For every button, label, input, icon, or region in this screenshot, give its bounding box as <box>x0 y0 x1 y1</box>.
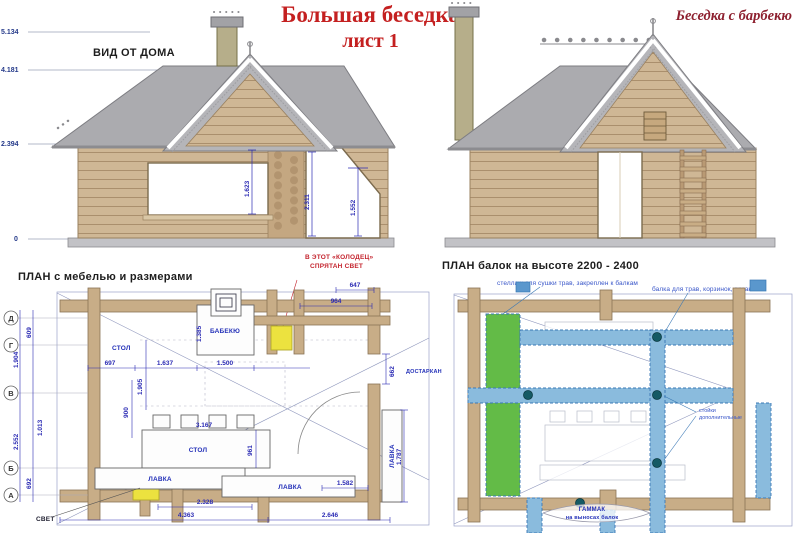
dimension-label: 1.582 <box>337 480 354 487</box>
dimension-label: 2.311 <box>304 194 311 210</box>
door-swing-arc <box>298 392 360 454</box>
plan-beams-drawing: ГАММАК на выносах балок стойки дополните… <box>440 260 800 533</box>
dimension-label: 1.623 <box>244 180 251 197</box>
hammock-label-line1: ГАММАК <box>579 507 606 513</box>
hammock-label-line2: на выносах балок <box>566 514 619 521</box>
log-corner <box>268 148 304 238</box>
beam-hammock-post-left <box>527 498 542 533</box>
chimney-cap <box>449 7 479 17</box>
dimension-label: 1.637 <box>157 360 174 367</box>
dimension-label: 1.013 <box>37 419 44 436</box>
furniture-label-table-small: СТОЛ <box>112 345 131 352</box>
dimension-label: 1.905 <box>137 378 144 395</box>
dimension-label: 2.552 <box>13 433 20 450</box>
beam-vertical-1 <box>650 330 665 533</box>
axis-letter: В <box>8 389 14 398</box>
furniture-label-bench2: ЛАВКА <box>278 484 302 491</box>
gazebo-side-elevation <box>445 3 775 247</box>
dimension-label: 692 <box>26 478 33 489</box>
scale-mark: 4.181 <box>1 67 19 74</box>
furniture-label-serving: ДОСТАРКАН <box>406 369 442 375</box>
dimension-label: 3.167 <box>196 422 213 429</box>
furniture-label-bench3: ЛАВКА <box>389 444 396 468</box>
dimension-label: 697 <box>105 360 116 367</box>
base-platform <box>68 238 394 247</box>
projection-rect <box>205 362 285 406</box>
posts-note-line2: дополнительные <box>699 415 742 421</box>
beam-horizontal-2 <box>468 388 733 403</box>
chair <box>237 415 254 428</box>
dimension-label: 4.363 <box>178 512 195 519</box>
herb-shelf-green <box>486 314 520 496</box>
stove-symbol <box>211 289 241 316</box>
dimension-label: 900 <box>123 407 130 418</box>
dimension-label: 1.904 <box>13 351 20 368</box>
posts-note-line1: стойки <box>699 407 716 414</box>
dimension-label: 609 <box>26 327 33 338</box>
dimension-label: 1.787 <box>396 448 403 465</box>
eave-ornament <box>58 118 72 128</box>
chimney <box>217 26 237 66</box>
axis-letter: А <box>8 491 14 500</box>
dimension-label: 2.646 <box>322 512 339 519</box>
hidden-light-well <box>271 326 292 350</box>
dimension-label: 1.552 <box>350 199 357 216</box>
beam-end-marker <box>516 282 530 292</box>
light-label: СВЕТ <box>36 516 55 523</box>
axis-letter: Б <box>8 464 14 473</box>
dimension-label: 1.385 <box>196 325 203 342</box>
dimension-label: 2.328 <box>197 499 214 506</box>
dimension-label: 964 <box>331 298 342 305</box>
plan-furniture-drawing: Д Г В Б А 647 964 697 1.637 1.500 <box>0 280 440 533</box>
furniture-label-bench1: ЛАВКА <box>148 476 172 483</box>
well-light-note-line1: В ЭТОТ «КОЛОДЕЦ» <box>305 254 373 261</box>
elevation-side-drawing <box>440 0 800 260</box>
chair <box>153 415 170 428</box>
chimney-pipe <box>455 16 473 140</box>
axis-letter: Д <box>8 314 14 323</box>
window-sill <box>143 215 273 220</box>
axis-grid: Д Г В Б А <box>4 311 88 502</box>
elevation-front-drawing: 5.134 4.181 2.394 0 <box>0 0 440 260</box>
chimney-cap <box>211 17 243 27</box>
scale-mark: 5.134 <box>1 29 19 36</box>
dimension-label: 961 <box>247 445 254 456</box>
scale-mark: 2.394 <box>1 141 19 148</box>
furniture-label-table-main: СТОЛ <box>189 447 208 454</box>
dimension-label: 662 <box>389 366 396 377</box>
dimension-label: 647 <box>350 282 361 289</box>
beam-vertical-right <box>756 403 771 498</box>
gazebo-front-elevation <box>52 12 395 247</box>
base-platform <box>445 238 775 247</box>
dimension-label: 1.500 <box>217 360 234 367</box>
scale-mark: 0 <box>14 236 18 243</box>
beam-end-marker <box>750 280 766 291</box>
drawing-sheet: Большая беседка лист 1 Беседка с барбекю… <box>0 0 800 533</box>
furniture-label-barbecue: БАБЕКЮ <box>210 328 240 335</box>
well-light-note-line2: СПРЯТАН СВЕТ <box>310 263 363 270</box>
beam-horizontal-1 <box>520 330 733 345</box>
axis-letter: Г <box>9 341 14 350</box>
